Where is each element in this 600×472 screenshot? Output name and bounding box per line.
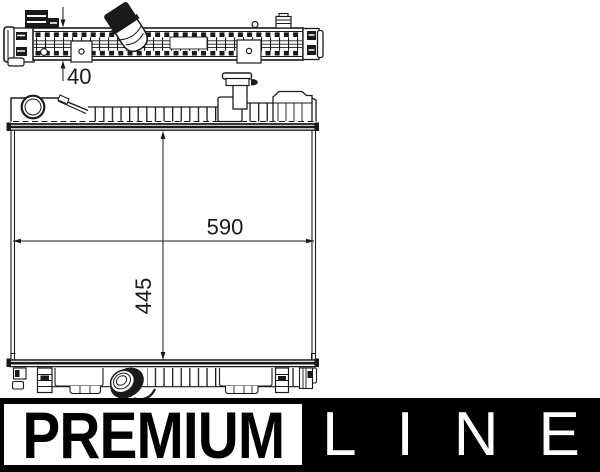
depth-dimension-label: 40 [67,64,91,89]
tank-ribs-left [90,107,218,122]
line-label: LINE [322,404,600,466]
bottom-ladder-bracket-right [276,368,289,393]
filler-cap-front-view [223,73,259,86]
front-view-top-tank [11,73,316,122]
radiator-front-view: 590 445 [7,73,320,398]
width-dimension-label: 590 [207,215,244,240]
height-dimension-label: 445 [131,278,156,315]
bottom-ribs-mid [147,368,220,387]
top-view-clip-bracket [276,14,291,29]
arrow-right-icon [306,239,314,244]
arrow-up-icon [161,131,166,139]
top-view-connector-block [25,10,59,28]
top-view-window [170,37,207,49]
bottom-ladder-bracket-left [38,368,53,393]
top-view-left-end-cap [4,27,34,66]
tank-right-step [273,92,312,122]
core-top-header [7,123,320,132]
top-view-small-port [252,22,258,28]
bottom-recess-left [55,368,103,386]
premium-badge: PREMIUM [4,404,302,465]
bottom-recess-right [220,368,273,386]
top-view-mount-bracket-right [237,40,261,63]
radiator-top-view: 40 [4,0,323,89]
tank-ribs-mid [248,103,273,122]
top-view-mount-bracket-left [71,41,92,62]
bottom-ribs-right2 [289,368,300,387]
bottom-foot-right [226,386,259,394]
bottom-right-end [300,368,317,389]
bottom-foot-left [70,386,101,394]
premium-label: PREMIUM [22,404,284,465]
top-view-screw [41,49,48,56]
top-view-right-end-cap [303,29,323,60]
arrow-down-icon [61,20,66,28]
technical-drawing: 40 [0,0,600,398]
dimension-height: 445 [131,131,165,360]
arrow-up-icon [61,61,66,69]
arrow-down-icon [161,352,166,360]
premium-line-logo: PREMIUM LINE [0,398,600,472]
tank-clip [58,95,69,104]
line-label-area: LINE [302,398,600,472]
radiator-drawing-page: 40 [0,0,600,472]
filler-neck [233,85,247,109]
